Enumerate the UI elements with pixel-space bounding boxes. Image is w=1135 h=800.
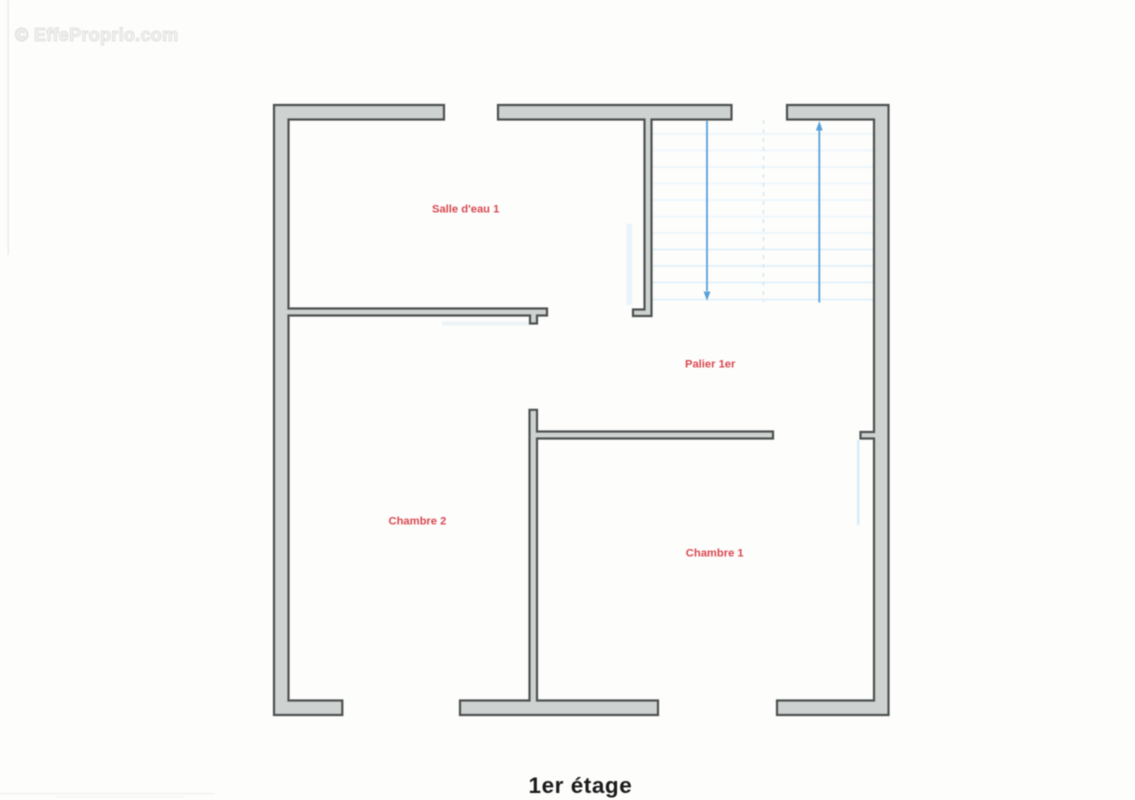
svg-text:Chambre 2: Chambre 2 [389,516,447,528]
svg-text:Salle d'eau 1: Salle d'eau 1 [432,204,499,216]
svg-text:Palier 1er: Palier 1er [685,359,736,371]
svg-text:© EffeProprio.com: © EffeProprio.com [15,25,178,45]
svg-text:1er étage: 1er étage [529,773,633,798]
svg-text:Chambre 1: Chambre 1 [686,548,744,560]
